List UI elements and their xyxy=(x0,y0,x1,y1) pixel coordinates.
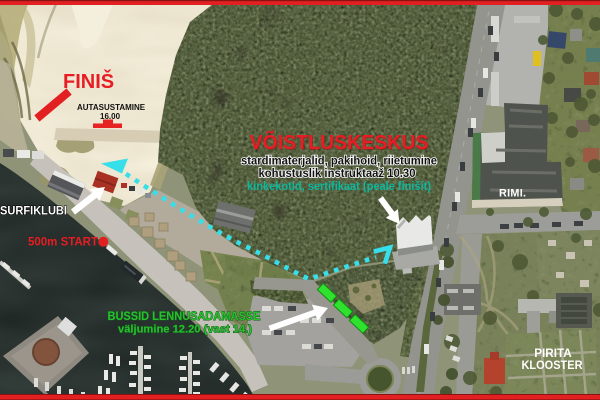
svg-text:500m START: 500m START xyxy=(28,235,99,249)
svg-text:kohustuslik instruktaaž 10.30: kohustuslik instruktaaž 10.30 xyxy=(259,166,416,180)
svg-text:KLOOSTER: KLOOSTER xyxy=(522,359,584,372)
svg-text:kinkekotid, sertifikaat (peale: kinkekotid, sertifikaat (peale finišit) xyxy=(247,179,431,193)
svg-text:väljumine 12.20 (vast 14.): väljumine 12.20 (vast 14.) xyxy=(118,324,252,336)
svg-text:RIMI.: RIMI. xyxy=(499,188,526,200)
svg-text:BUSSID LENNUSADAMASSE: BUSSID LENNUSADAMASSE xyxy=(108,309,261,323)
svg-text:AUTASUSTAMINE: AUTASUSTAMINE xyxy=(77,103,146,112)
svg-text:VÕISTLUSKESKUS: VÕISTLUSKESKUS xyxy=(250,130,429,154)
svg-text:FINIŠ: FINIŠ xyxy=(63,69,114,93)
svg-text:SURFIKLUBI: SURFIKLUBI xyxy=(0,204,67,218)
